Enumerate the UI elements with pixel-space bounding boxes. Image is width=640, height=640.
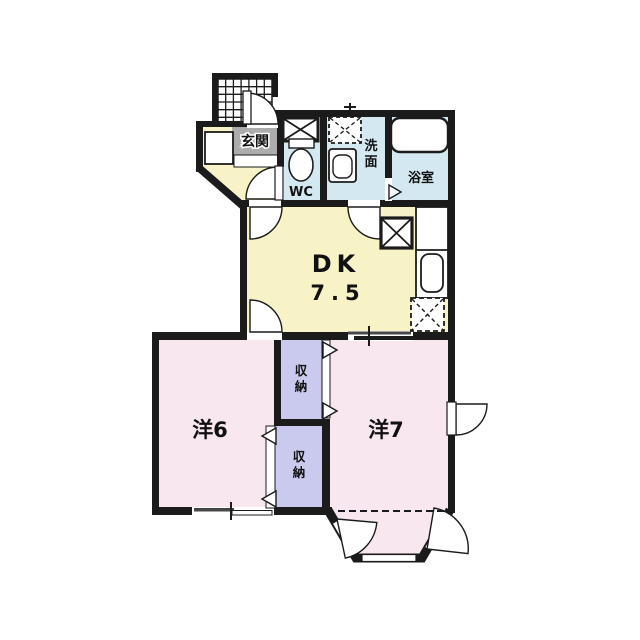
bathroom-label: 浴室: [408, 170, 434, 186]
entrance-step: [234, 155, 278, 167]
wall-segment: [274, 419, 330, 426]
wall-segment: [196, 121, 203, 172]
western-room-7-label: 洋7: [368, 418, 404, 442]
wall-segment: [152, 332, 159, 515]
wall-segment: [275, 110, 455, 117]
toilet-label: WC: [289, 185, 313, 200]
wall-segment: [320, 117, 327, 200]
bay-window-bottom: [362, 555, 416, 562]
washer-space-box: [329, 117, 361, 143]
wall-segment: [282, 332, 348, 340]
washroom-label-char2: 面: [364, 155, 377, 170]
wall-segment: [152, 332, 247, 340]
sliding-door-track: [348, 332, 411, 335]
washroom-label-char1: 洗: [364, 138, 377, 154]
sliding-door-panel: [354, 336, 413, 340]
side-door-leaf: [447, 402, 456, 435]
storage-lower-label-char1: 収: [293, 449, 306, 464]
storage-upper-label-char2: 納: [295, 379, 308, 394]
wall-segment: [448, 434, 455, 513]
wall-segment: [413, 332, 455, 340]
dk-label: DK: [312, 250, 361, 278]
window-panel-right: [232, 511, 272, 516]
storage-lower-label-char2: 納: [293, 465, 306, 480]
bay-window-right-arc: [427, 508, 468, 554]
entrance-label: 玄関: [241, 133, 269, 150]
wall-segment: [272, 73, 278, 97]
storage-upper-label-char1: 収: [295, 363, 308, 378]
shoe-cabinet: [205, 132, 233, 164]
wall-segment: [322, 426, 330, 513]
window-panel-left: [194, 508, 234, 512]
side-door-arc: [456, 404, 487, 435]
wall-segment: [240, 203, 247, 340]
wall-segment: [281, 200, 348, 207]
bathtub: [391, 118, 448, 152]
floor-plan: 玄関 WC 洗 面 浴室 DK 7.5 洋6 洋7 収 納 収 納: [0, 0, 640, 640]
toilet-tank: [289, 139, 314, 148]
kitchen-sink: [421, 254, 443, 292]
wall-segment: [274, 340, 281, 425]
wall-segment: [212, 73, 278, 79]
wall-segment: [212, 73, 218, 125]
floor-plan-image: 玄関 WC 洗 面 浴室 DK 7.5 洋6 洋7 収 納 収 納: [0, 0, 640, 640]
wall-segment: [196, 121, 247, 127]
toilet-bowl: [289, 149, 313, 181]
washbasin-bowl: [333, 155, 352, 178]
wall-segment: [448, 110, 455, 402]
wall-segment: [152, 507, 193, 515]
toilet-door-leaf: [275, 166, 283, 200]
front-door-leaf: [243, 91, 251, 124]
wall-segment: [380, 200, 455, 207]
dk-size-label: 7.5: [310, 281, 365, 305]
western-room-6-label: 洋6: [192, 418, 228, 442]
